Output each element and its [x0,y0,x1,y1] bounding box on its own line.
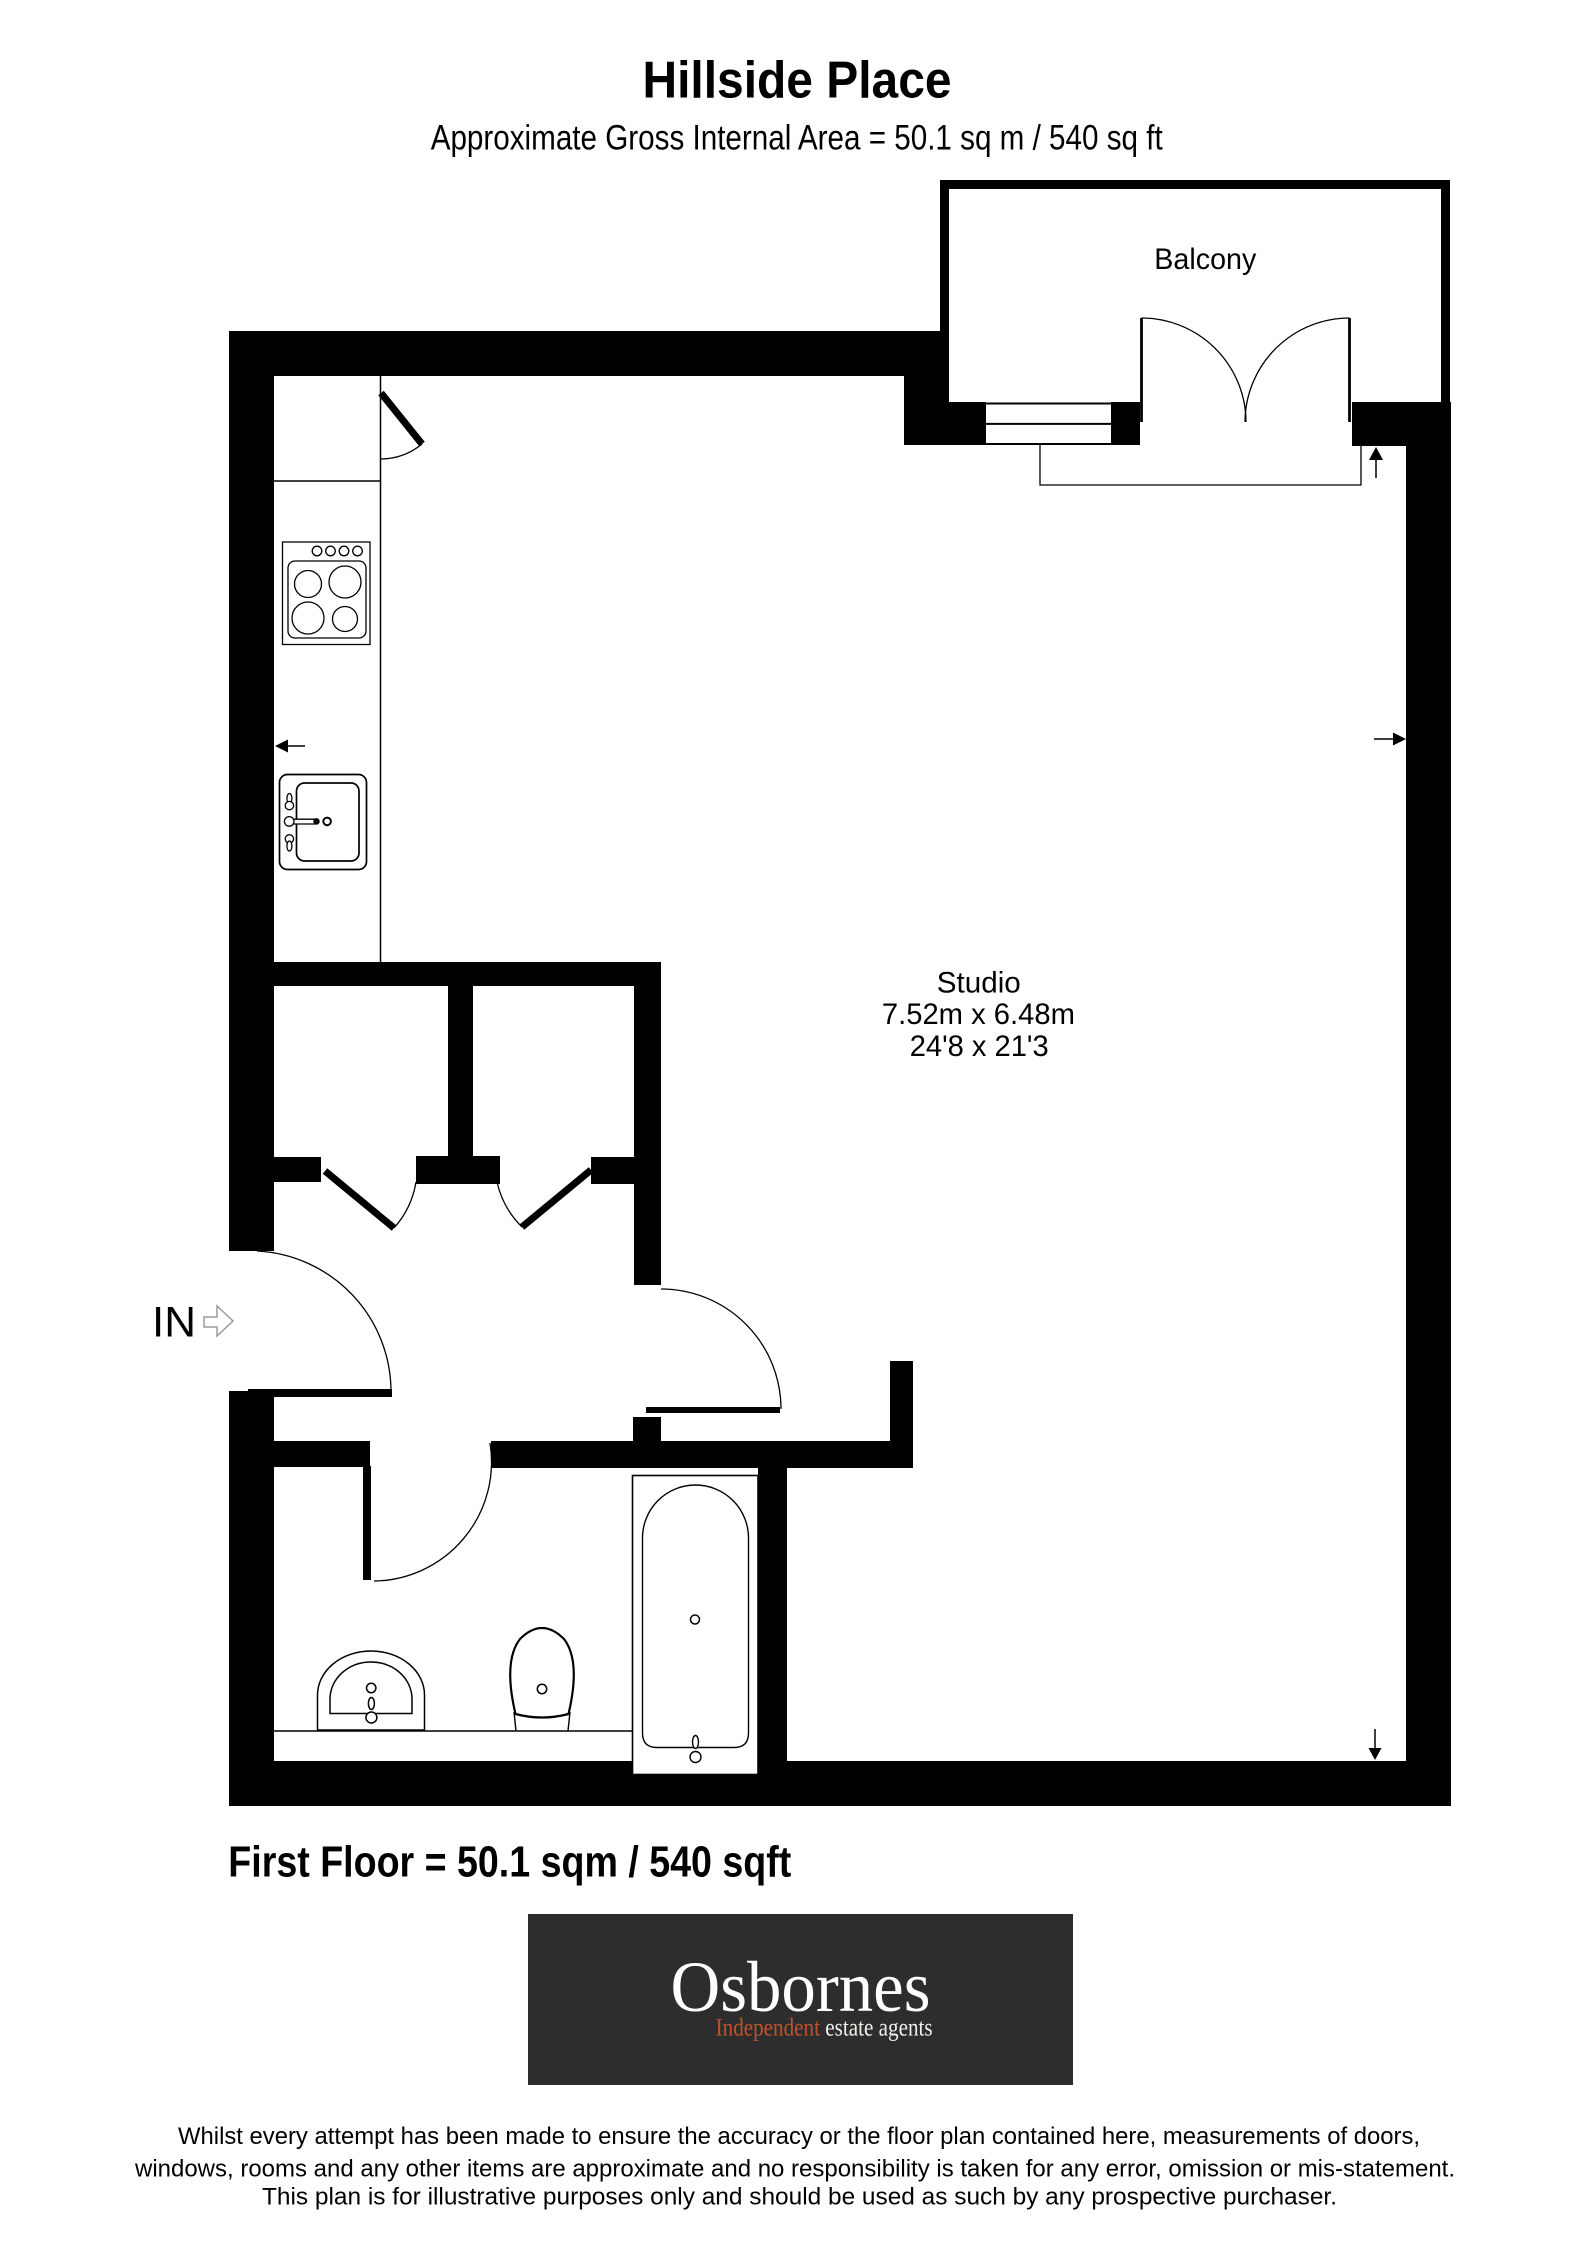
svg-text:windows, rooms and any other i: windows, rooms and any other items are a… [134,2155,1455,2182]
svg-text:7.52m x 6.48m: 7.52m x 6.48m [882,998,1075,1031]
svg-text:IN: IN [152,1298,196,1346]
svg-text:Approximate Gross Internal Are: Approximate Gross Internal Area = 50.1 s… [431,118,1163,157]
svg-text:Balcony: Balcony [1154,243,1256,276]
svg-text:Studio: Studio [937,966,1021,999]
svg-text:Independent estate agents: Independent estate agents [716,2015,933,2042]
svg-text:Whilst every attempt has been: Whilst every attempt has been made to en… [178,2123,1420,2150]
svg-text:24'8 x 21'3: 24'8 x 21'3 [910,1030,1049,1063]
svg-text:First Floor = 50.1 sqm / 540 s: First Floor = 50.1 sqm / 540 sqft [228,1837,791,1886]
svg-text:Hillside Place: Hillside Place [643,51,952,109]
svg-text:This plan is for illustrative: This plan is for illustrative purposes o… [262,2184,1337,2211]
